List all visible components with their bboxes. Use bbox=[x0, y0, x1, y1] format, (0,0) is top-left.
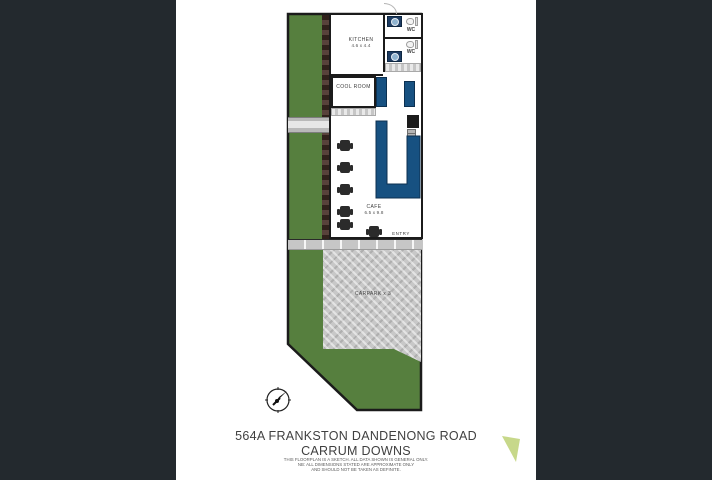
entry-label: ENTRY bbox=[387, 231, 415, 236]
cool-room bbox=[331, 76, 376, 108]
basin-icon bbox=[391, 18, 399, 26]
address-line-1: 564A FRANKSTON DANDENONG ROAD bbox=[176, 429, 536, 443]
wc-divider-wall bbox=[385, 37, 421, 39]
basin-icon bbox=[391, 53, 399, 61]
cafe-table-icon bbox=[366, 226, 382, 237]
cafe-table-icon bbox=[337, 140, 353, 151]
cafe-table-icon bbox=[337, 162, 353, 173]
counter-right bbox=[404, 81, 415, 107]
kitchen-room-label: KITCHEN 4.6 x 4.4 bbox=[334, 37, 388, 49]
cafe-table-icon bbox=[337, 184, 353, 195]
compass-icon bbox=[263, 385, 293, 415]
cafe-table-icon bbox=[337, 206, 353, 217]
kitchen-dimensions: 4.6 x 4.4 bbox=[334, 43, 388, 49]
cool-room-name: COOL ROOM bbox=[331, 84, 376, 90]
counter-left bbox=[376, 77, 387, 107]
bench-hatch bbox=[385, 63, 421, 72]
disclaimer-text: THIS FLOORPLAN IS A SKETCH. ALL DATA SHO… bbox=[226, 458, 485, 473]
servery-hatch bbox=[331, 108, 376, 116]
cool-room-label: COOL ROOM bbox=[331, 84, 376, 90]
toilet-icon bbox=[406, 17, 418, 26]
side-walkway bbox=[288, 117, 330, 133]
carpark-area bbox=[323, 250, 421, 362]
disclaimer-line-3: AND SHOULD NOT BE TAKEN AS DEFINITE. bbox=[226, 468, 485, 473]
cafe-dimensions: 6.5 x 9.8 bbox=[356, 210, 392, 216]
cafe-u-counter bbox=[375, 120, 421, 200]
address-line-2: CARRUM DOWNS bbox=[176, 444, 536, 458]
cafe-table-icon bbox=[337, 219, 353, 230]
cafe-room-label: CAFE 6.5 x 9.8 bbox=[356, 204, 392, 216]
floorplan-page: CARPARK x 3 KITCHEN 4.6 x 4.4 WC WC COOL… bbox=[0, 0, 712, 480]
wc1-label: WC bbox=[402, 27, 420, 33]
sink-icon bbox=[387, 16, 402, 27]
sink-icon bbox=[387, 51, 402, 62]
wc2-label: WC bbox=[402, 49, 420, 55]
front-path bbox=[288, 239, 422, 250]
toilet-icon bbox=[406, 40, 418, 49]
carpark-label: CARPARK x 3 bbox=[333, 291, 413, 297]
